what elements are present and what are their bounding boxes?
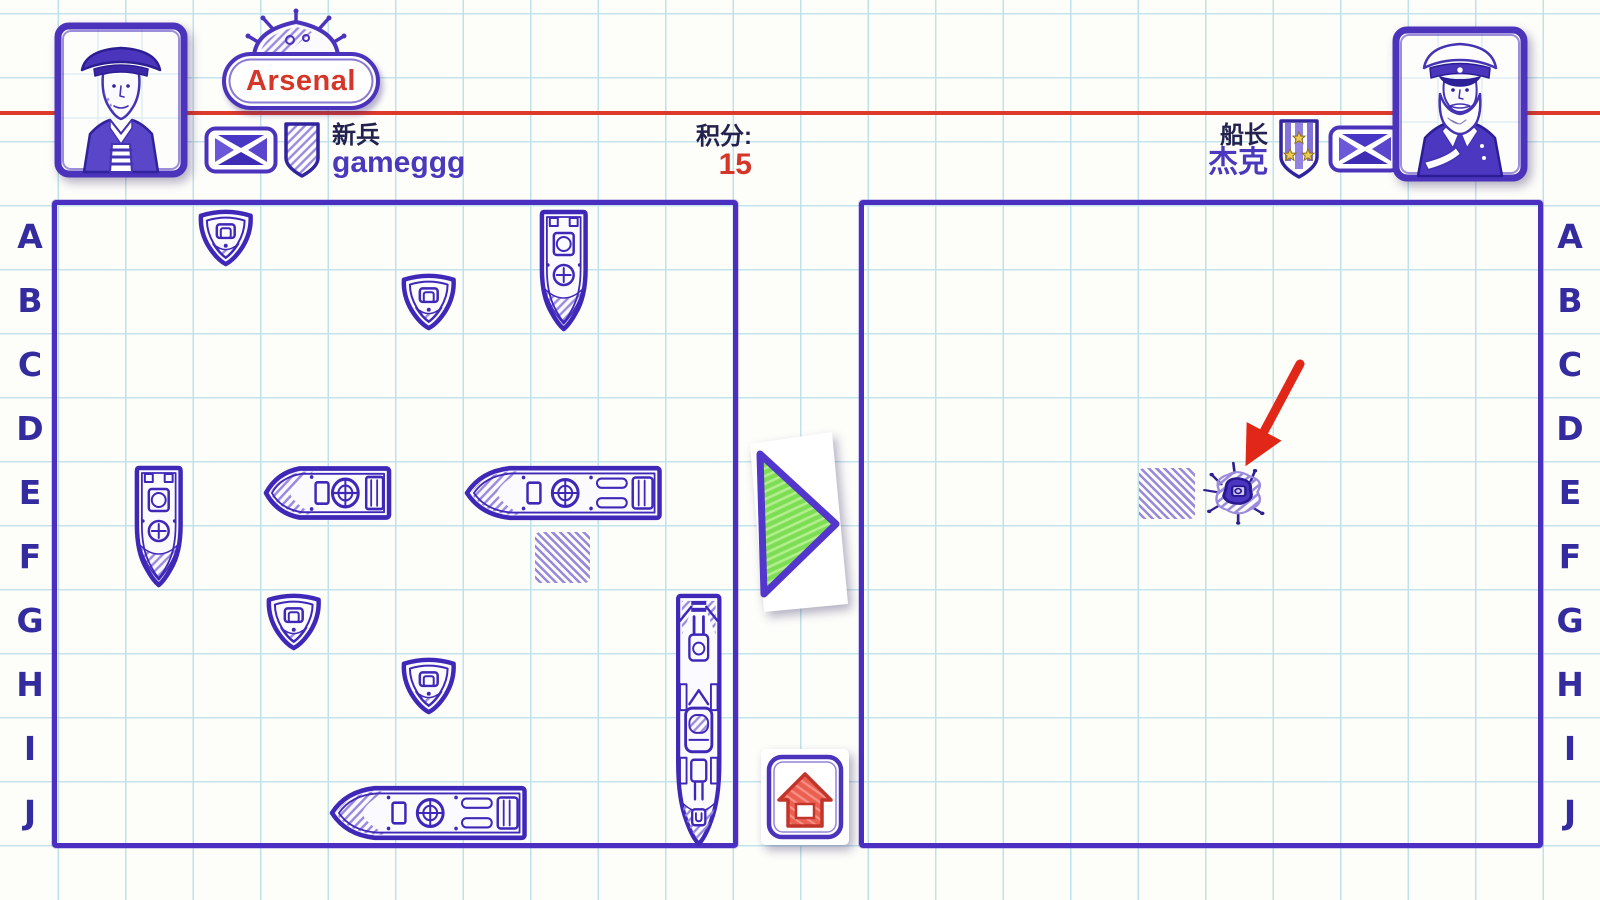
right-player-info: 船长 杰克 [1140, 124, 1268, 179]
row-label-right-E: E [1548, 461, 1592, 525]
player-flag-saltire-icon[interactable] [204, 126, 278, 174]
row-label-right-A: A [1548, 205, 1592, 269]
row-label-left-C: C [8, 333, 52, 397]
row-label-left-E: E [8, 461, 52, 525]
row-label-left-B: B [8, 269, 52, 333]
red-pointer-arrow-icon [1216, 350, 1316, 476]
player-ship-vertical-4-G10 [665, 589, 733, 851]
row-label-right-H: H [1548, 653, 1592, 717]
row-label-left-H: H [8, 653, 52, 717]
player-ship-horizontal-3-J5 [327, 781, 530, 845]
miss-marker-E5 [1139, 468, 1195, 519]
score-block: 积分: 15 [620, 124, 752, 181]
left-player-rank: 新兵 [332, 124, 465, 148]
opponent-flag-saltire-icon[interactable] [1328, 125, 1402, 173]
player-ship-single-G4 [260, 589, 328, 653]
row-label-right-I: I [1548, 717, 1592, 781]
row-label-left-F: F [8, 525, 52, 589]
row-label-left-G: G [8, 589, 52, 653]
row-label-left-D: D [8, 397, 52, 461]
player-ship-horizontal-3-E7 [462, 461, 665, 525]
score-value: 15 [620, 149, 752, 181]
arsenal-button-label: Arsenal [246, 65, 356, 98]
home-button[interactable] [758, 746, 852, 850]
player-ship-single-A3 [192, 205, 260, 269]
player-ship-single-H6 [395, 653, 463, 717]
opponent-avatar-captain[interactable] [1392, 26, 1528, 182]
arsenal-button[interactable]: Arsenal [222, 52, 380, 110]
sea-battle-game-screen: Arsenal 新兵 gameggg 积分: 15 船长 杰克 [0, 0, 1600, 900]
play-arrow-button[interactable] [744, 428, 852, 616]
left-player-info: 新兵 gameggg [332, 124, 465, 179]
player-ship-vertical-2-E2 [125, 461, 193, 589]
row-label-left-A: A [8, 205, 52, 269]
right-player-rank: 船长 [1140, 124, 1268, 148]
left-player-name: gameggg [332, 148, 465, 179]
row-label-right-F: F [1548, 525, 1592, 589]
player-avatar-sailor[interactable] [54, 22, 188, 178]
captain-rank-stars-badge-icon [1276, 117, 1322, 181]
row-label-right-C: C [1548, 333, 1592, 397]
row-label-right-J: J [1548, 781, 1592, 845]
row-label-right-B: B [1548, 269, 1592, 333]
player-ship-vertical-2-A8 [530, 205, 598, 333]
score-label: 积分: [620, 124, 752, 149]
row-label-left-I: I [8, 717, 52, 781]
right-player-name: 杰克 [1140, 148, 1268, 179]
notebook-red-line [0, 111, 1600, 115]
player-ship-horizontal-2-E4 [260, 461, 395, 525]
row-label-right-D: D [1548, 397, 1592, 461]
row-label-right-G: G [1548, 589, 1592, 653]
miss-marker-F8 [535, 532, 591, 583]
player-ship-single-B6 [395, 269, 463, 333]
row-label-left-J: J [8, 781, 52, 845]
recruit-rank-shield-icon [281, 120, 323, 180]
